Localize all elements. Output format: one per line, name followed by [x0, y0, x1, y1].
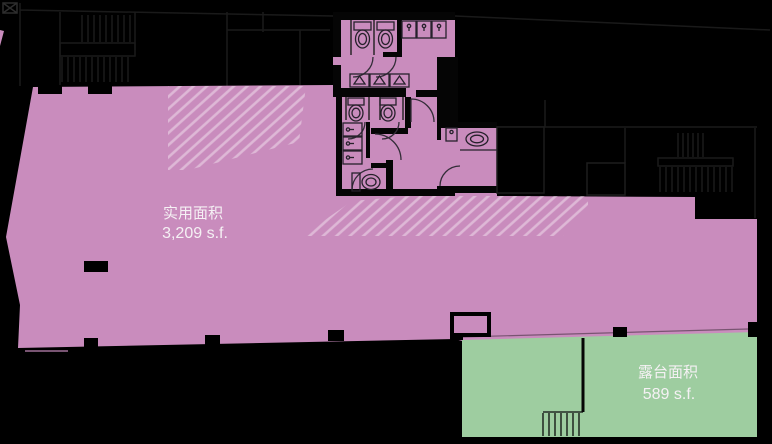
terrace-area-value: 589 s.f. — [643, 386, 695, 403]
top-wall-tab — [38, 85, 62, 94]
usable-area-label: 实用面积 — [163, 205, 223, 222]
floor-plan-svg: 实用面积 3,209 s.f. 露台面积 589 s.f. — [0, 0, 772, 444]
terrace-wall-tab — [748, 322, 763, 337]
doorway-frame-box — [452, 314, 489, 335]
terrace-polygon — [462, 332, 757, 437]
usable-area-value: 3,209 s.f. — [162, 225, 228, 242]
terrace-wall-tab — [613, 327, 627, 337]
terrace-region — [462, 322, 763, 437]
bottom-wall-tab — [84, 338, 98, 348]
terrace-divider-wall — [582, 338, 585, 412]
floor-plan-page: 实用面积 3,209 s.f. 露台面积 589 s.f. — [0, 0, 772, 444]
column-block — [84, 261, 108, 272]
duct-box — [587, 163, 625, 195]
bottom-wall-tab — [328, 330, 344, 341]
bottom-wall-tab — [205, 335, 220, 345]
terrace-area-label: 露台面积 — [638, 364, 698, 381]
service-shaft — [497, 127, 544, 193]
top-wall-tab — [88, 85, 112, 94]
